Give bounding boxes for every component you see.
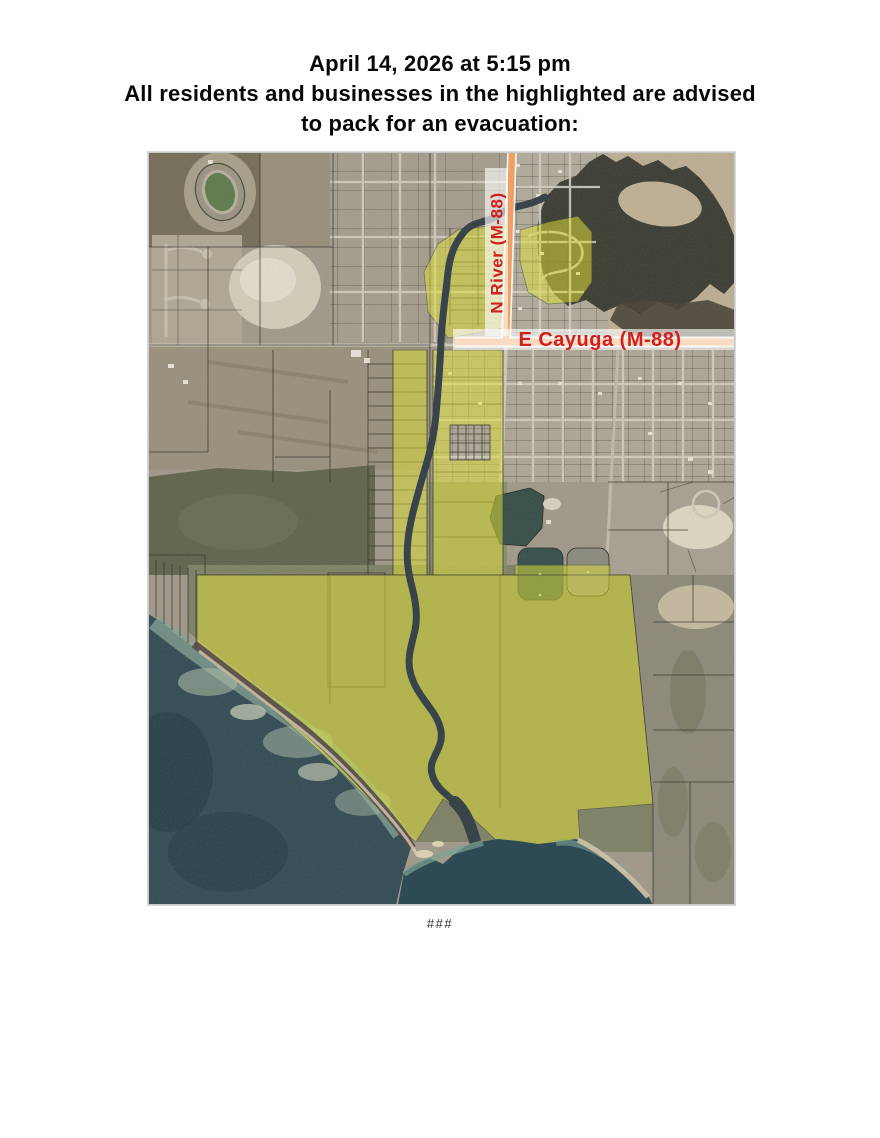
advisory-header: April 14, 2026 at 5:15 pm All residents … xyxy=(0,49,880,139)
evacuation-map-image: N River (M-88) E Cayuga (M-88) xyxy=(148,152,735,905)
advisory-datetime: April 14, 2026 at 5:15 pm xyxy=(0,49,880,79)
evacuation-map-svg: N River (M-88) E Cayuga (M-88) xyxy=(148,152,735,905)
advisory-line2: All residents and businesses in the high… xyxy=(0,79,880,109)
press-release-page: April 14, 2026 at 5:15 pm All residents … xyxy=(0,0,880,1138)
press-release-end-marker: ### xyxy=(0,916,880,931)
road-label-n-river: N River (M-88) xyxy=(488,192,507,313)
advisory-line3: to pack for an evacuation: xyxy=(0,109,880,139)
road-label-e-cayuga: E Cayuga (M-88) xyxy=(518,329,681,351)
